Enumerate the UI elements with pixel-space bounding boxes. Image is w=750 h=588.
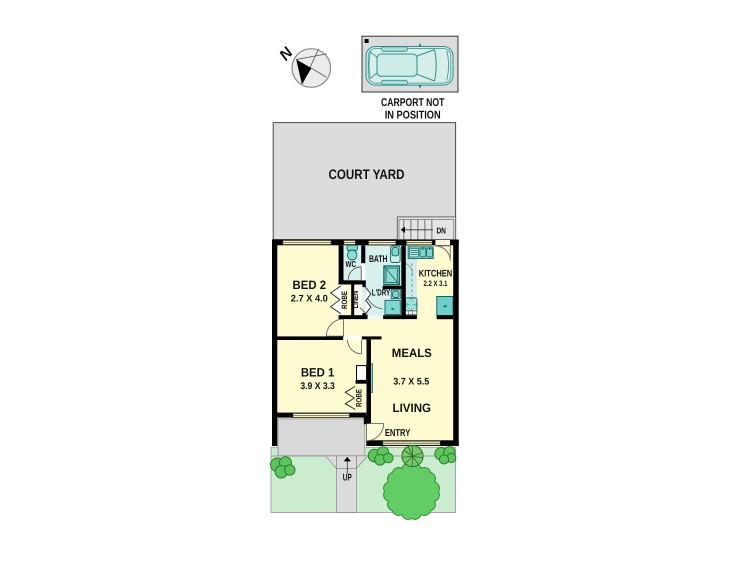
- svg-text:BED 1: BED 1: [301, 365, 335, 379]
- svg-text:BATH: BATH: [369, 254, 388, 265]
- svg-text:DN: DN: [436, 225, 446, 235]
- svg-text:CARPORT NOT: CARPORT NOT: [381, 97, 445, 109]
- svg-text:UP: UP: [343, 473, 352, 484]
- svg-text:BED 2: BED 2: [293, 278, 327, 292]
- svg-text:IN POSITION: IN POSITION: [385, 110, 441, 122]
- svg-text:LIVING: LIVING: [393, 401, 432, 415]
- svg-text:3.9 X 3.3: 3.9 X 3.3: [300, 381, 335, 392]
- svg-text:COURT YARD: COURT YARD: [329, 167, 405, 182]
- svg-text:2.2 X 3.1: 2.2 X 3.1: [424, 279, 449, 288]
- svg-text:MEALS: MEALS: [392, 346, 432, 360]
- svg-text:KITCHEN: KITCHEN: [419, 269, 453, 280]
- svg-text:3.7 X 5.5: 3.7 X 5.5: [393, 376, 430, 387]
- svg-text:ENTRY: ENTRY: [385, 428, 411, 439]
- svg-text:LINEN: LINEN: [351, 290, 360, 308]
- svg-text:ROBE: ROBE: [354, 389, 363, 407]
- svg-text:ROBE: ROBE: [340, 291, 349, 309]
- svg-text:2.7 X 4.0: 2.7 X 4.0: [291, 293, 328, 304]
- svg-text:L'DRY: L'DRY: [372, 287, 391, 297]
- svg-text:WC: WC: [346, 259, 357, 269]
